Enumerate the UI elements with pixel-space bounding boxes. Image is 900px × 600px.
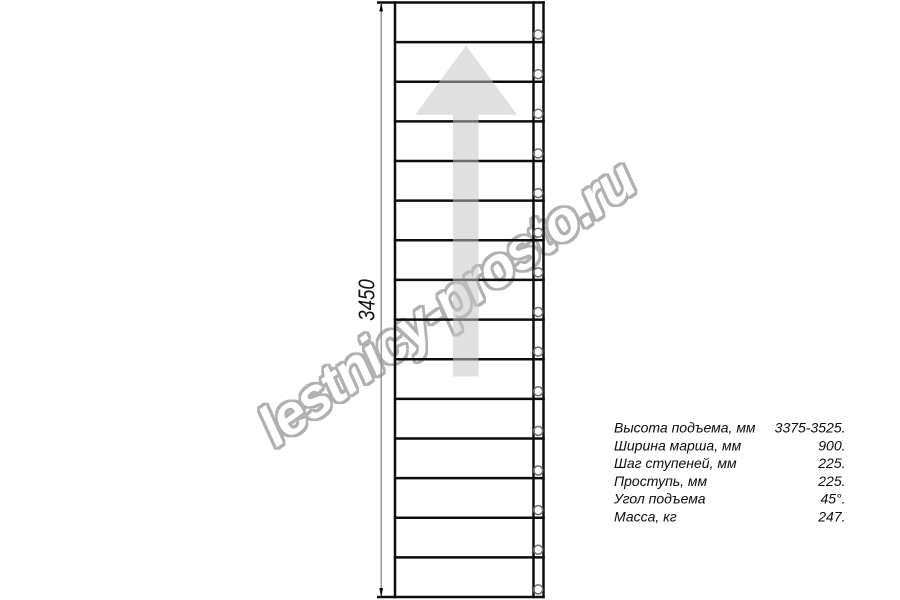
svg-text:45°.: 45°. [820, 491, 845, 507]
svg-text:900.: 900. [818, 437, 845, 453]
svg-text:3450: 3450 [355, 279, 380, 321]
svg-text:225.: 225. [817, 473, 845, 489]
svg-text:3375-3525.: 3375-3525. [775, 420, 846, 436]
svg-text:225.: 225. [817, 455, 845, 471]
svg-text:247.: 247. [817, 509, 845, 525]
svg-text:Ширина марша, мм: Ширина марша, мм [614, 437, 742, 453]
svg-text:Угол подъема: Угол подъема [613, 491, 706, 507]
svg-text:Шаг ступеней, мм: Шаг ступеней, мм [614, 455, 737, 471]
svg-text:Высота подъема, мм: Высота подъема, мм [614, 420, 756, 436]
svg-text:Масса, кг: Масса, кг [614, 509, 677, 525]
svg-text:Проступь, мм: Проступь, мм [614, 473, 708, 489]
